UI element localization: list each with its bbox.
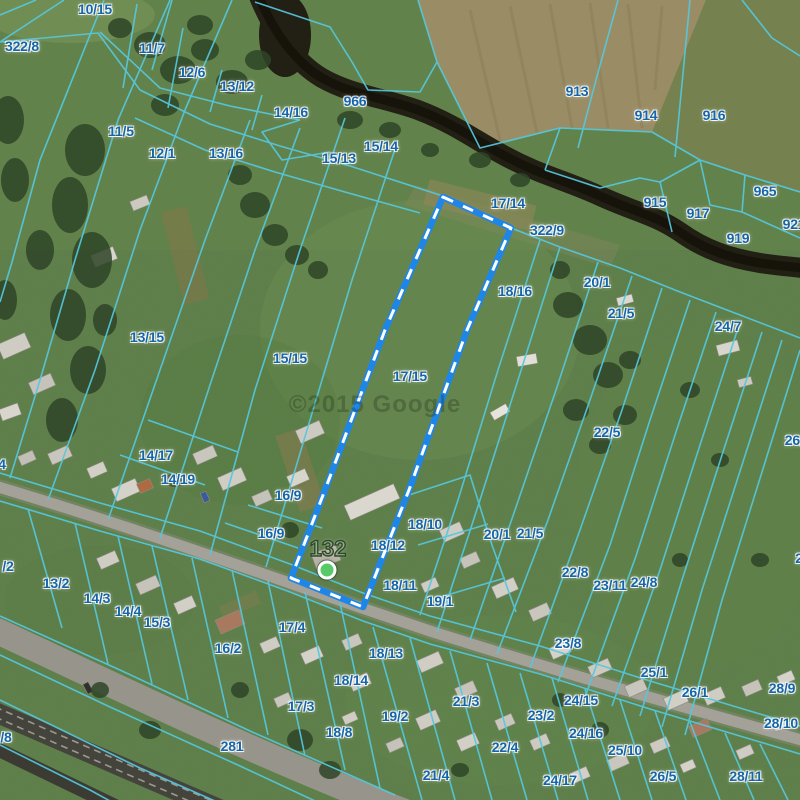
parcel-label[interactable]: 15/14 — [364, 138, 398, 154]
parcel-label[interactable]: 916 — [703, 107, 726, 123]
parcel-label[interactable]: 23/8 — [555, 635, 581, 651]
parcel-label[interactable]: 14/17 — [139, 447, 173, 463]
parcel-label[interactable]: 28/10 — [764, 715, 798, 731]
parcel-label[interactable]: 26/1 — [682, 684, 708, 700]
parcel-label[interactable]: 15/13 — [322, 150, 356, 166]
parcel-label[interactable]: 17/4 — [279, 619, 305, 635]
parcel-label[interactable]: 22/5 — [594, 424, 620, 440]
parcel-label[interactable]: 16/9 — [258, 525, 284, 541]
parcel-label[interactable]: /8 — [0, 729, 11, 745]
parcel-label[interactable]: 2 — [795, 550, 800, 566]
parcel-label[interactable]: 18/12 — [371, 537, 405, 553]
parcel-label[interactable]: 25/10 — [608, 742, 642, 758]
parcel-label[interactable]: 322/8 — [5, 38, 39, 54]
parcel-label[interactable]: 26/5 — [650, 768, 676, 784]
parcel-label[interactable]: 22/4 — [492, 739, 518, 755]
parcel-label[interactable]: 18/13 — [369, 645, 403, 661]
parcel-label[interactable]: 22/8 — [562, 564, 588, 580]
parcel-label[interactable]: 13/16 — [209, 145, 243, 161]
parcel-label[interactable]: 19/2 — [382, 708, 408, 724]
parcel-label[interactable]: 18/10 — [408, 516, 442, 532]
parcel-label[interactable]: 15/3 — [144, 614, 170, 630]
parcel-label[interactable]: 914 — [635, 107, 658, 123]
parcel-label[interactable]: 11/7 — [139, 40, 165, 56]
parcel-label[interactable]: 915 — [644, 194, 667, 210]
parcel-label[interactable]: 21/3 — [453, 693, 479, 709]
parcel-label[interactable]: 25/1 — [641, 664, 667, 680]
parcel-label[interactable]: 919 — [727, 230, 750, 246]
parcel-label[interactable]: 28/9 — [769, 680, 795, 696]
map-canvas[interactable]: ©2015 Google 10/15322/811/712/613/129661… — [0, 0, 800, 800]
parcel-label[interactable]: 24/8 — [631, 574, 657, 590]
parcel-label[interactable]: 14/16 — [274, 104, 308, 120]
parcel-label[interactable]: 21/4 — [423, 767, 449, 783]
parcel-label[interactable]: 966 — [344, 93, 367, 109]
parcel-label[interactable]: 13/15 — [130, 329, 164, 345]
parcel-label[interactable]: 18/11 — [383, 577, 416, 593]
parcel-label[interactable]: 17/14 — [491, 195, 525, 211]
parcel-label[interactable]: 18/16 — [498, 283, 532, 299]
parcel-label[interactable]: 24/16 — [569, 725, 603, 741]
parcel-label[interactable]: 281 — [221, 738, 244, 754]
marker-dot-icon[interactable] — [318, 561, 337, 580]
parcel-label[interactable]: 23/11 — [593, 577, 626, 593]
parcel-label[interactable]: 16/9 — [275, 487, 301, 503]
parcel-label[interactable]: 21/5 — [608, 305, 634, 321]
parcel-label[interactable]: 18/14 — [334, 672, 368, 688]
parcel-label[interactable]: 14/19 — [161, 471, 195, 487]
parcel-label[interactable]: 20/1 — [584, 274, 610, 290]
parcel-label[interactable]: 4 — [0, 456, 6, 472]
parcel-label[interactable]: 913 — [566, 83, 589, 99]
parcel-label[interactable]: 26/1 — [785, 432, 800, 448]
parcel-label[interactable]: /2 — [2, 558, 13, 574]
parcel-label[interactable]: 15/15 — [273, 350, 307, 366]
parcel-label[interactable]: 10/15 — [78, 1, 112, 17]
parcel-label[interactable]: 21/5 — [517, 525, 543, 541]
parcel-label[interactable]: 921 — [783, 216, 800, 232]
parcel-label[interactable]: 17/3 — [288, 698, 314, 714]
parcel-label[interactable]: 17/15 — [393, 368, 427, 384]
parcel-label[interactable]: 965 — [754, 183, 777, 199]
parcel-label[interactable]: 20/1 — [484, 526, 510, 542]
parcel-label[interactable]: 322/9 — [530, 222, 564, 238]
parcel-label[interactable]: 24/15 — [564, 692, 598, 708]
parcel-label[interactable]: 28/11 — [729, 768, 762, 784]
parcel-label[interactable]: 14/4 — [115, 603, 141, 619]
parcel-label[interactable]: 19/1 — [427, 593, 453, 609]
parcel-label[interactable]: 11/5 — [108, 123, 134, 139]
parcel-label[interactable]: 24/17 — [543, 772, 577, 788]
parcel-label[interactable]: 13/12 — [220, 78, 254, 94]
parcel-label[interactable]: 18/8 — [326, 724, 352, 740]
parcel-label[interactable]: 13/2 — [43, 575, 69, 591]
satellite-imagery-layer — [0, 0, 800, 800]
parcel-label[interactable]: 12/6 — [179, 64, 205, 80]
parcel-label[interactable]: 12/1 — [149, 145, 175, 161]
parcel-label[interactable]: 24/7 — [715, 318, 741, 334]
parcel-label[interactable]: 23/2 — [528, 707, 554, 723]
marker-label: 132 — [310, 536, 347, 562]
parcel-label[interactable]: 16/2 — [215, 640, 241, 656]
parcel-label[interactable]: 14/3 — [84, 590, 110, 606]
parcel-label[interactable]: 917 — [687, 205, 710, 221]
